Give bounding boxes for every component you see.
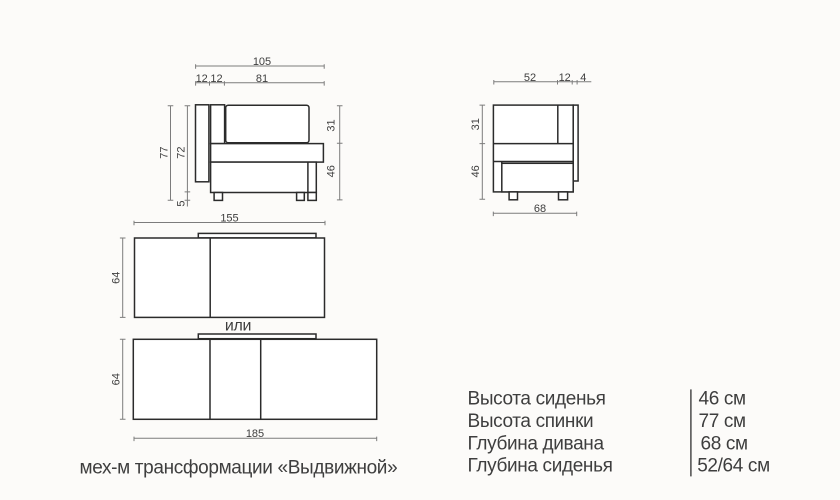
svg-text:Глубина дивана: Глубина дивана bbox=[468, 433, 605, 454]
svg-text:64: 64 bbox=[111, 373, 123, 385]
svg-text:64: 64 bbox=[111, 272, 123, 284]
svg-text:68: 68 bbox=[534, 203, 546, 215]
svg-text:мех-м трансформации «Выдвижной: мех-м трансформации «Выдвижной» bbox=[80, 458, 398, 479]
svg-text:68 см: 68 см bbox=[701, 433, 748, 454]
svg-text:185: 185 bbox=[246, 428, 264, 440]
svg-text:155: 155 bbox=[220, 212, 238, 224]
svg-text:52: 52 bbox=[524, 72, 536, 84]
svg-text:или: или bbox=[225, 318, 251, 335]
svg-text:31: 31 bbox=[470, 118, 482, 130]
svg-text:46: 46 bbox=[470, 165, 482, 177]
svg-text:72: 72 bbox=[175, 146, 187, 158]
svg-text:12: 12 bbox=[196, 73, 208, 85]
svg-text:12: 12 bbox=[559, 72, 571, 84]
svg-text:Высота спинки: Высота спинки bbox=[468, 411, 594, 432]
svg-text:5: 5 bbox=[175, 200, 187, 206]
svg-text:31: 31 bbox=[325, 119, 337, 131]
svg-text:12: 12 bbox=[210, 73, 222, 85]
svg-text:4: 4 bbox=[580, 72, 586, 84]
svg-text:Глубина сиденья: Глубина сиденья bbox=[468, 455, 613, 476]
svg-text:Высота сиденья: Высота сиденья bbox=[468, 388, 606, 409]
svg-text:46: 46 bbox=[325, 165, 337, 177]
svg-text:105: 105 bbox=[253, 56, 271, 68]
svg-text:77 см: 77 см bbox=[699, 411, 746, 432]
svg-text:46 см: 46 см bbox=[699, 388, 746, 409]
svg-text:81: 81 bbox=[256, 73, 268, 85]
svg-text:77: 77 bbox=[159, 146, 171, 158]
svg-text:52/64 см: 52/64 см bbox=[697, 455, 770, 476]
